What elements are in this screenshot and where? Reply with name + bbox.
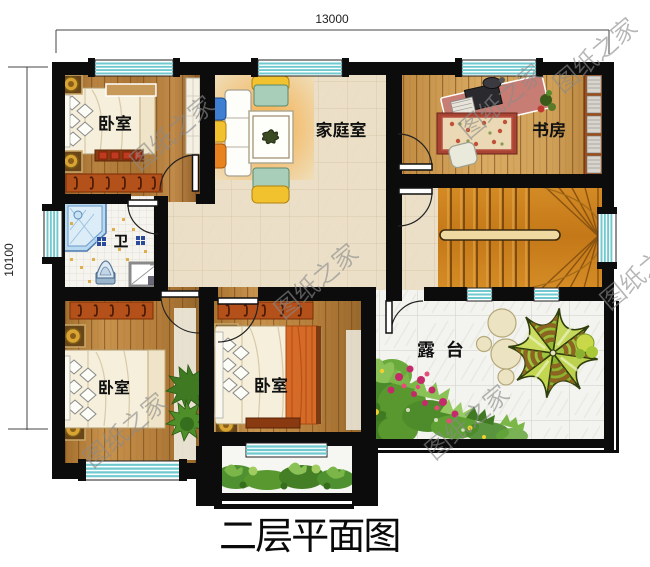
svg-text:10100: 10100 [2, 243, 16, 277]
svg-text:13000: 13000 [315, 12, 349, 26]
